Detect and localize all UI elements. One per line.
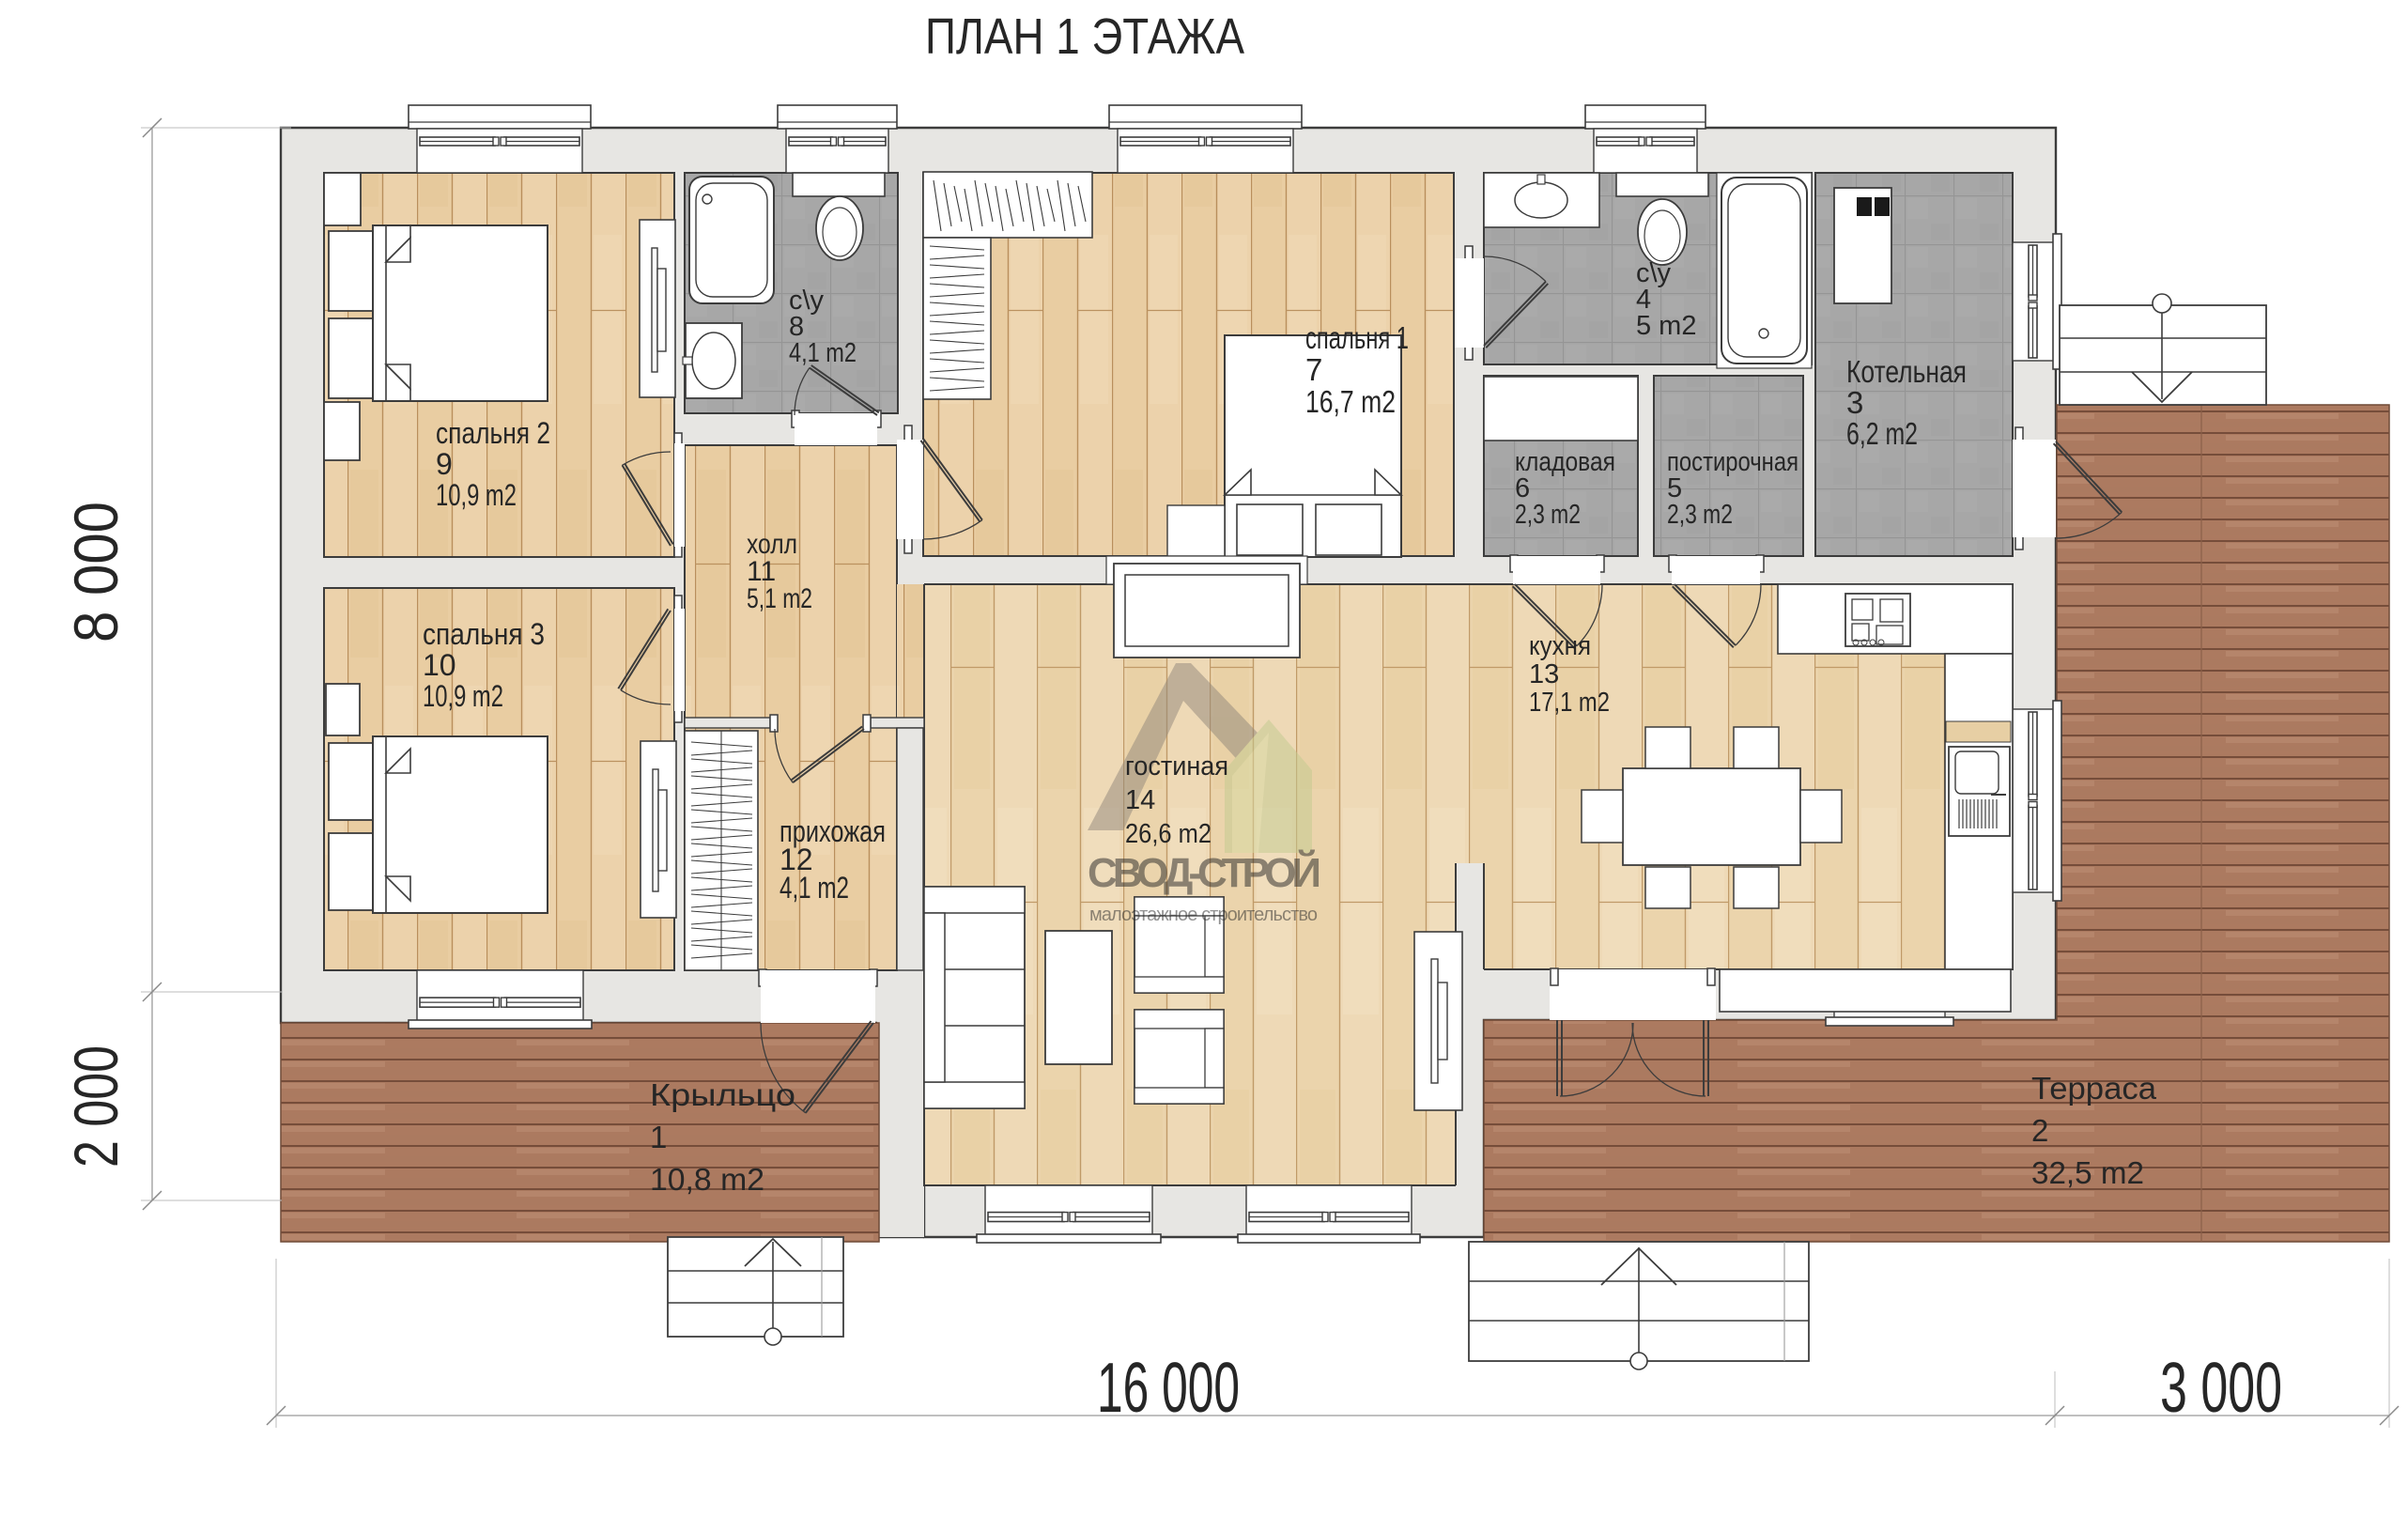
svg-text:2: 2 — [2031, 1113, 2048, 1148]
svg-text:16 000: 16 000 — [1097, 1348, 1240, 1427]
svg-text:10: 10 — [423, 648, 456, 682]
svg-text:4,1 m2: 4,1 m2 — [780, 871, 849, 905]
svg-text:спальня 3: спальня 3 — [423, 617, 545, 651]
svg-text:6,2 m2: 6,2 m2 — [1846, 416, 1918, 451]
svg-text:спальня 1: спальня 1 — [1305, 320, 1409, 355]
svg-text:26,6 m2: 26,6 m2 — [1125, 819, 1212, 849]
svg-text:16,7 m2: 16,7 m2 — [1305, 384, 1396, 419]
svg-text:2 000: 2 000 — [61, 1045, 131, 1168]
svg-text:3: 3 — [1846, 385, 1863, 420]
svg-text:малоэтажное строительство: малоэтажное строительство — [1089, 905, 1319, 925]
svg-text:8 000: 8 000 — [61, 502, 131, 642]
svg-text:17,1 m2: 17,1 m2 — [1529, 688, 1610, 718]
svg-text:1: 1 — [650, 1120, 667, 1154]
svg-text:ПЛАН 1 ЭТАЖА: ПЛАН 1 ЭТАЖА — [925, 8, 1244, 65]
svg-text:5,1 m2: 5,1 m2 — [747, 583, 812, 614]
svg-text:9: 9 — [436, 447, 453, 481]
svg-text:10,8 m2: 10,8 m2 — [650, 1162, 764, 1197]
svg-text:кухня: кухня — [1529, 631, 1591, 661]
svg-text:Терраса: Терраса — [2031, 1071, 2157, 1106]
svg-text:7: 7 — [1305, 352, 1322, 387]
svg-text:Крыльцо: Крыльцо — [650, 1077, 795, 1112]
svg-text:2,3 m2: 2,3 m2 — [1515, 500, 1581, 530]
svg-text:постирочная: постирочная — [1667, 447, 1798, 477]
svg-text:спальня 2: спальня 2 — [436, 416, 550, 450]
svg-text:14: 14 — [1125, 785, 1155, 815]
svg-text:10,9 m2: 10,9 m2 — [436, 478, 517, 512]
svg-text:4,1 m2: 4,1 m2 — [789, 338, 857, 368]
svg-text:гостиная: гостиная — [1125, 751, 1228, 781]
svg-text:10,9 m2: 10,9 m2 — [423, 679, 503, 713]
svg-text:5 m2: 5 m2 — [1636, 311, 1696, 341]
svg-text:3 000: 3 000 — [2160, 1348, 2282, 1427]
svg-text:СВОД-СТРОЙ: СВОД-СТРОЙ — [1088, 848, 1322, 896]
svg-text:13: 13 — [1529, 659, 1559, 689]
svg-text:Котельная: Котельная — [1846, 354, 1967, 389]
svg-text:2,3 m2: 2,3 m2 — [1667, 500, 1733, 530]
svg-text:32,5 m2: 32,5 m2 — [2031, 1155, 2144, 1190]
